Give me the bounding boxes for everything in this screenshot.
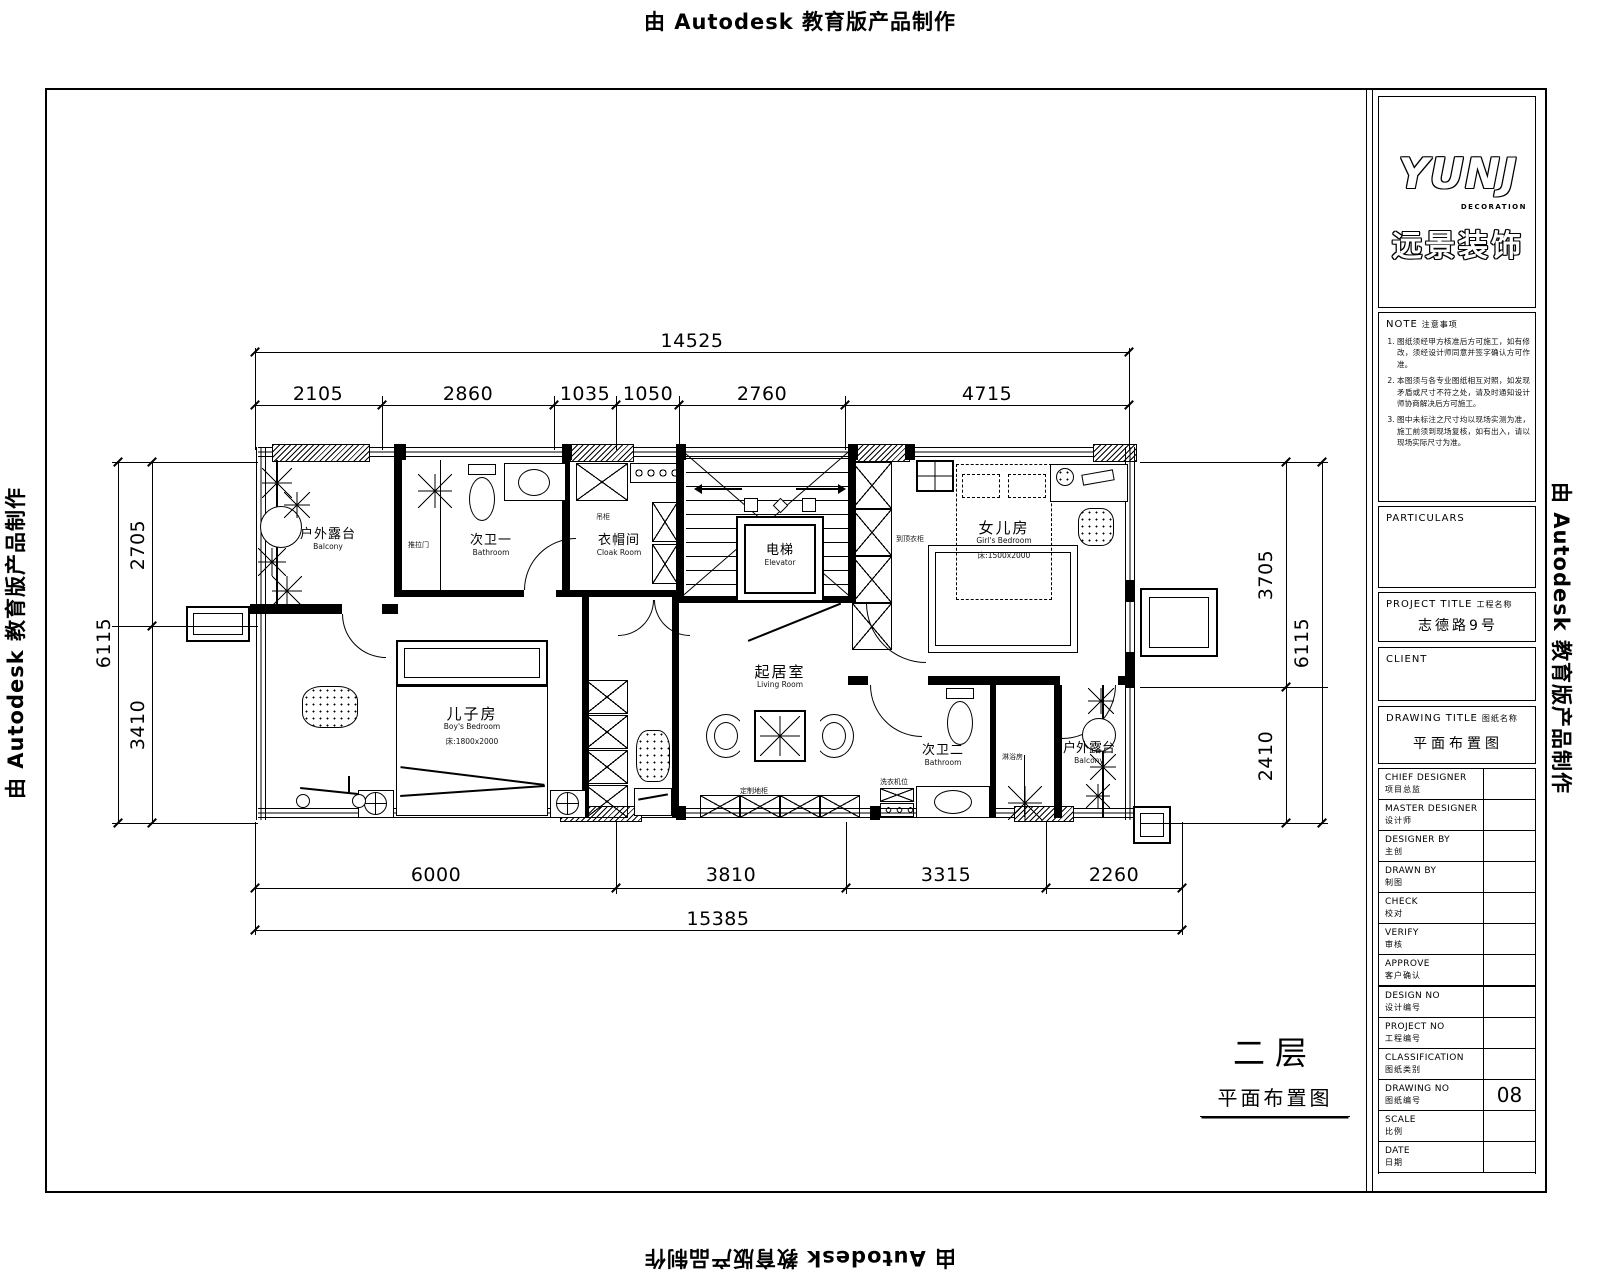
watermark-right: 由 Autodesk 教育版产品制作 [1547,448,1577,828]
dim-right-seg: 3705 [1255,535,1277,615]
table-row: SCALE比例 [1379,1111,1535,1142]
wardrobe-icon [852,603,892,650]
stair-tread [686,500,848,501]
wall-hatch [850,444,910,462]
wall-post [905,444,915,460]
dimension-line [1322,462,1323,823]
room-sub: Balcony [1048,757,1130,766]
scooter-wheel [296,794,310,808]
room-sub: Bathroom [898,759,988,768]
title-block-divider-inner [1372,88,1373,1193]
room-name: 次卫二 [898,744,988,759]
particulars-label: PARTICULARS [1379,507,1535,524]
room-label-girl: 女儿房 Girl's Bedroom 床:1500x2000 [944,520,1064,561]
room-label-living: 起居室 Living Room [732,664,828,690]
room-name: 户外露台 [1048,742,1130,757]
bed-size: 床:1800x2000 [388,738,556,747]
room-sub: Boy's Bedroom [388,723,556,732]
pillow [1008,474,1046,498]
chair-icon [302,686,358,728]
dim-left-seg: 2705 [127,505,149,585]
extension-line [1046,822,1047,894]
wall [394,447,402,597]
client-box: CLIENT [1378,647,1536,701]
table-row: DATE日期 [1379,1142,1535,1173]
extension-line [255,348,256,450]
room-label-terrace-br: 户外露台 Balcony [1048,742,1130,766]
ac-platform [1140,588,1218,657]
dimension-line [255,352,1130,353]
note-box: NOTE注意事项 图纸须经甲方核准后方可施工，如有修改，须经设计师同意并签字确认… [1378,312,1536,502]
bench [634,788,672,816]
extension-line [616,822,617,894]
plant-icon [258,548,286,576]
floor-drawing-name: 平面布置图 [1200,1082,1350,1117]
wall [928,676,1060,685]
project-title-box: PROJECT TITLE工程名称 志德路9号 [1378,592,1536,642]
drawing-number: 08 [1483,1080,1535,1110]
wardrobe-icon [586,785,628,818]
extension-line [112,462,258,463]
shower-icon [1008,786,1042,820]
wall [848,676,868,685]
small-label-door: 推拉门 [408,540,429,550]
dim-right-total: 6115 [1291,603,1313,683]
logo-box: YUNJ DECORATION 远景装饰 [1378,96,1536,308]
room-sub: Balcony [286,543,370,552]
wall [556,590,678,597]
wardrobe-icon [852,556,892,603]
garment-bag-icon [636,730,670,782]
dimension-line [255,405,1130,406]
room-label-boy: 儿子房 Boy's Bedroom 床:1800x2000 [388,706,556,747]
room-sub: Elevator [740,559,820,568]
armchair-opening [740,720,750,752]
hanger-rail-icon [630,463,678,483]
armchair-icon-inner [822,722,846,750]
signature-table: CHIEF DESIGNER项目总监 MASTER DESIGNER设计师 DE… [1378,768,1536,1174]
note-item: 图纸须经甲方核准后方可施工，如有修改，须经设计师同意并签字确认方可作准。 [1397,336,1530,370]
extension-line [112,626,258,627]
elevator-machinery [802,498,816,512]
dim-bottom-total: 15385 [678,908,758,930]
stove-icon [880,803,914,817]
chair-icon [1078,508,1114,546]
wall [990,685,996,818]
watermark-top: 由 Autodesk 教育版产品制作 [0,6,1600,36]
room-name: 起居室 [732,664,828,681]
dim-right-seg: 2410 [1255,716,1277,796]
lamp-icon [364,792,387,815]
table-row: VERIFY审核 [1379,924,1535,955]
pillow [962,474,1000,498]
dim-top-total: 14525 [652,330,732,352]
drawing-title-value: 平面布置图 [1379,733,1537,753]
cabinet-icon [820,795,860,818]
partition-line [440,460,441,590]
lamp-icon [556,792,579,815]
drawing-title-box: DRAWING TITLE图纸名称 平面布置图 [1378,706,1536,764]
wardrobe-icon [852,462,892,509]
bed-size: 床:1500x2000 [944,552,1064,561]
plant-icon [272,576,302,606]
dim-bottom-seg: 6000 [396,864,476,886]
wall [394,590,524,597]
wardrobe-icon [586,715,628,749]
table-row: DESIGNER BY主创 [1379,831,1535,862]
plant-icon [760,716,800,756]
wall [382,604,398,614]
note-items: 图纸须经甲方核准后方可施工，如有修改，须经设计师同意并签字确认方可作准。 本图须… [1379,336,1535,449]
partition-line [1024,755,1025,817]
wall-hatch [570,444,634,462]
dim-top-seg: 2860 [428,383,508,405]
note-title: NOTE注意事项 [1379,313,1535,330]
small-label-shower: 淋浴房 [1002,752,1023,762]
table-row: CHIEF DESIGNER项目总监 [1379,769,1535,800]
dim-top-seg: 2105 [278,383,358,405]
room-label-cloak: 衣帽间 Cloak Room [576,534,662,558]
desk-item [1056,468,1074,486]
stair-arrow [700,488,742,490]
toilet-tank [468,464,496,475]
dimension-line [1286,462,1287,823]
bed-headboard [396,640,548,686]
side-platform [186,606,250,642]
corner-box [1133,806,1171,844]
sink-icon [518,469,550,496]
brand-tagline: DECORATION [1437,203,1527,211]
watermark-bottom: 由 Autodesk 教育版产品制作 [0,1244,1600,1274]
table-row: CHECK校对 [1379,893,1535,924]
watermark-left: 由 Autodesk 教育版产品制作 [0,453,30,833]
dimension-line [152,462,153,823]
room-sub: Cloak Room [576,549,662,558]
dimension-line [118,462,119,823]
wall-post [1125,580,1135,602]
table-row: APPROVE客户确认 [1379,955,1535,986]
wall [1118,676,1135,685]
note-item: 图中未标注之尺寸均以现场实测为准，施工前须到现场复核，如有出入，请以现场实际尺寸… [1397,414,1530,448]
wall-hatch [272,444,370,462]
cad-sheet: 由 Autodesk 教育版产品制作 由 Autodesk 教育版产品制作 由 … [0,0,1600,1280]
table-row: DESIGN NO设计编号 [1379,987,1535,1018]
small-label-cabinet: 吊柜 [596,512,610,522]
shower-icon [418,474,452,508]
dim-top-seg: 4715 [947,383,1027,405]
brand-logo: YUNJ [1387,149,1529,198]
plant-icon [1086,784,1110,808]
extension-line [1140,462,1328,463]
stair-tread [686,458,848,459]
toilet-icon [947,701,973,745]
dim-bottom-seg: 2260 [1074,864,1154,886]
plant-icon [1088,688,1114,714]
brand-name-cn: 远景装饰 [1379,221,1537,265]
sink-icon [934,790,972,814]
plant-icon [284,492,310,518]
table-row: DRAWN BY制图 [1379,862,1535,893]
room-name: 女儿房 [944,520,1064,537]
room-label-bath1: 次卫一 Bathroom [448,534,534,558]
wall-post [870,806,880,820]
wardrobe-icon [586,680,628,714]
table-row: CLASSIFICATION图纸类别 [1379,1049,1535,1080]
stair-arrow-head [838,484,846,494]
armchair-opening [810,720,820,752]
cabinet-icon [780,795,820,818]
room-sub: Bathroom [448,549,534,558]
extension-line [112,823,258,824]
toilet-tank [946,688,974,699]
room-name: 衣帽间 [576,534,662,549]
stair-tread [686,514,848,515]
room-name: 户外露台 [286,528,370,543]
window-symbol [916,460,954,492]
floor-name: 二层 [1200,1028,1350,1074]
note-item: 本图须与各专业图纸相互对照，如发现矛盾或尺寸不符之处，请及时通知设计师协商解决后… [1397,375,1530,409]
dim-left-seg: 3410 [127,685,149,765]
drawing-title-label: DRAWING TITLE图纸名称 [1379,707,1535,724]
wardrobe-icon [852,509,892,556]
table-row-drawing-no: DRAWING NO图纸编号08 [1379,1080,1535,1111]
dim-top-seg: 2760 [722,383,802,405]
extension-line [846,822,847,894]
dimension-line [255,930,1183,931]
room-name: 次卫一 [448,534,534,549]
room-label-elevator: 电梯 Elevator [740,544,820,568]
dim-left-total: 6115 [93,603,115,683]
extension-line [1182,822,1183,935]
room-name: 电梯 [740,544,820,559]
stair-arrow-head [694,484,702,494]
extension-line [1140,823,1328,824]
room-sub: Girl's Bedroom [944,537,1064,546]
elevator-machinery [744,498,758,512]
table-row: MASTER DESIGNER设计师 [1379,800,1535,831]
stair-arrow [796,488,838,490]
extension-line [255,822,256,935]
cabinet-icon [576,463,628,501]
floor-label: 二层 平面布置图 [1200,1028,1350,1117]
extension-line [1129,348,1130,450]
small-label-wardrobe: 到顶衣柜 [896,534,924,544]
dim-bottom-seg: 3810 [691,864,771,886]
wall-left-window [256,612,266,820]
extension-line [1140,687,1328,688]
particulars-box: PARTICULARS [1378,506,1536,588]
armchair-icon-inner [714,722,738,750]
dim-bottom-seg: 3315 [906,864,986,886]
title-block-divider [1366,88,1367,1193]
wall-top-window [258,447,1135,457]
room-sub: Living Room [732,681,828,690]
client-label: CLIENT [1379,648,1535,665]
toilet-icon [469,477,495,521]
room-label-bath2: 次卫二 Bathroom [898,744,988,768]
cabinet-icon [700,795,740,818]
room-name: 儿子房 [388,706,556,723]
room-label-balcony-tl: 户外露台 Balcony [286,528,370,552]
scooter-wheel [352,794,366,808]
wardrobe-icon [586,750,628,784]
stair-tread [686,486,848,487]
cabinet-icon [740,795,780,818]
small-label-washer: 洗衣机位 [880,777,908,787]
table-row: PROJECT NO工程编号 [1379,1018,1535,1049]
dim-top-seg: 1050 [608,383,688,405]
washer-icon [880,788,914,802]
project-title-value: 志德路9号 [1379,615,1537,635]
scooter-handle [348,776,350,794]
project-title-label: PROJECT TITLE工程名称 [1379,593,1535,610]
